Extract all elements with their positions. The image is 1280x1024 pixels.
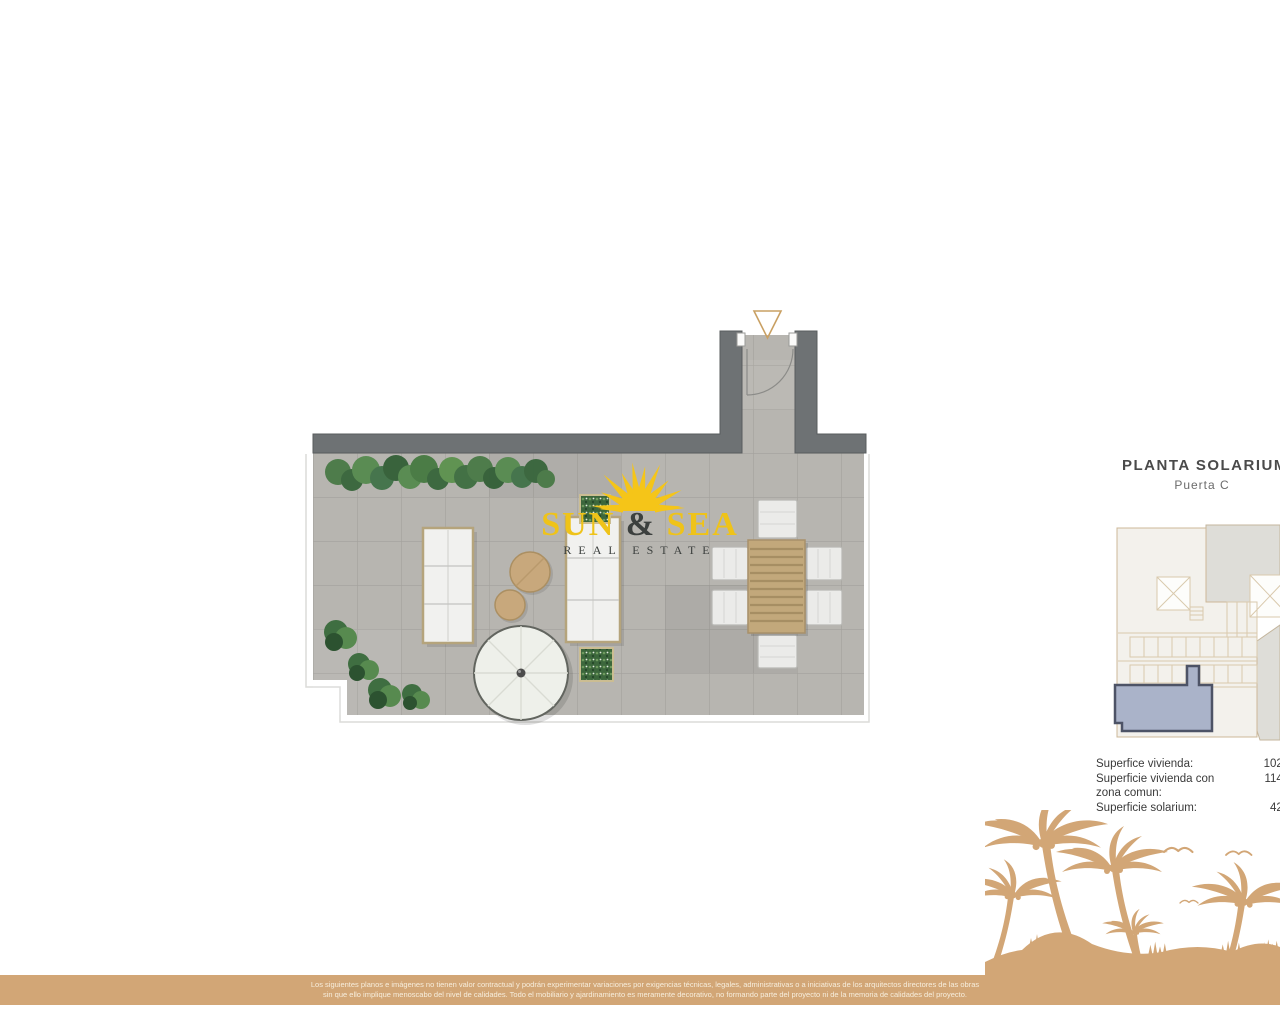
disclaimer-bar: Los siguientes planos e imágenes no tien… xyxy=(0,975,1280,1005)
bird-icon xyxy=(1180,900,1198,903)
building-key-map xyxy=(1105,520,1280,742)
surface-row: Superfice vivienda: 102. xyxy=(1096,757,1280,772)
planter-bottom xyxy=(580,648,613,681)
disclaimer-line-1: Los siguientes planos e imágenes no tien… xyxy=(295,980,995,990)
logo-tagline: REAL ESTATE xyxy=(540,543,740,558)
dining-table xyxy=(748,540,808,636)
logo-word-sea: SEA xyxy=(667,506,739,543)
plan-title: PLANTA SOLARIUM xyxy=(1122,457,1280,474)
disclaimer-line-2: sin que ello implique menoscabo del nive… xyxy=(295,990,995,1000)
surface-value: 114. xyxy=(1264,772,1280,801)
keymap-shaft-right xyxy=(1250,575,1280,617)
logo-wordmark: SUN & SEA xyxy=(540,510,740,540)
sun-and-sea-logo: SUN & SEA REAL ESTATE xyxy=(540,452,740,577)
surface-value: 102. xyxy=(1264,757,1280,772)
entrance-triangle-icon xyxy=(754,311,781,338)
bird-icon xyxy=(1226,851,1252,855)
disclaimer-text: Los siguientes planos e imágenes no tien… xyxy=(295,980,995,1000)
surface-row: Superficie vivienda con zona comun: 114. xyxy=(1096,772,1280,801)
sun-lounger-left xyxy=(423,528,477,647)
logo-word-sun: SUN xyxy=(541,506,615,543)
logo-ampersand: & xyxy=(626,506,656,543)
surface-areas: Superfice vivienda: 102. Superficie vivi… xyxy=(1096,757,1280,815)
palm-beach-silhouette xyxy=(985,810,1280,975)
bird-icon xyxy=(1164,848,1193,852)
brochure-page: SUN & SEA REAL ESTATE PLANTA SOLARIUM Pu… xyxy=(0,0,1280,1024)
surface-label: Superfice vivienda: xyxy=(1096,757,1224,772)
surface-label: Superficie vivienda con zona comun: xyxy=(1096,772,1224,801)
keymap-shaft-left xyxy=(1157,577,1190,610)
plan-subtitle: Puerta C xyxy=(1122,478,1280,492)
